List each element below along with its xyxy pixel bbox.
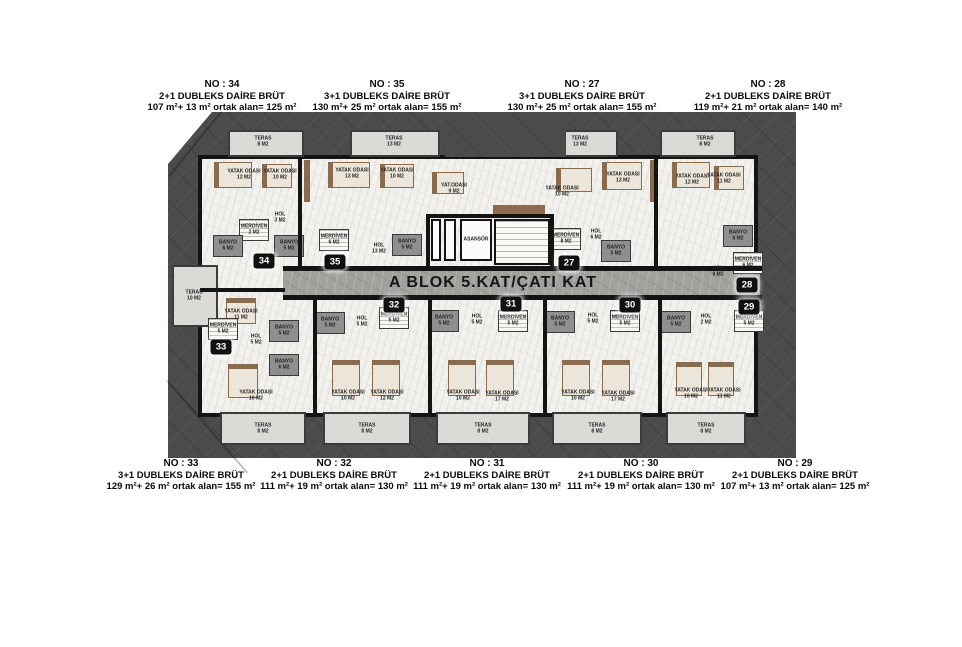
unit-badge-30: 30 — [620, 298, 641, 313]
room-label: TERAS10 M2 — [186, 291, 203, 302]
room-label: MERDİVEN5 M2 — [500, 316, 526, 327]
floorplan-sheet: NO : 342+1 DUBLEKS DAİRE BRÜT107 m²+ 13 … — [0, 0, 962, 647]
room-label: TERAS13 M2 — [386, 137, 403, 148]
unit-label-31: NO : 312+1 DUBLEKS DAİRE BRÜT111 m²+ 19 … — [399, 458, 575, 492]
unit-badge-28: 28 — [737, 278, 758, 293]
room-label: YATAK ODASI10 M2 — [545, 187, 578, 198]
unit-badge-34: 34 — [254, 254, 275, 269]
unit-type: 2+1 DUBLEKS DAİRE BRÜT — [553, 470, 729, 481]
room-label: MERDİVEN6 M2 — [321, 235, 347, 246]
room-label: YATAK ODASI17 M2 — [601, 392, 634, 403]
room-label: HOL2 M2 — [700, 315, 711, 326]
room-label: ASANSÖR — [463, 237, 488, 243]
room-label: BANYO6 M2 — [729, 231, 747, 242]
wall — [426, 214, 554, 218]
room-label: YATAK ODASI10 M2 — [331, 391, 364, 402]
room-label: MERDİVEN5 M2 — [612, 316, 638, 327]
room-label: TERAS8 M2 — [475, 424, 492, 435]
elevator-shaft — [444, 219, 456, 261]
room-label: YATAK ODASI11 M2 — [224, 310, 257, 321]
unit-type: 2+1 DUBLEKS DAİRE BRÜT — [134, 91, 310, 102]
unit-label-28: NO : 282+1 DUBLEKS DAİRE BRÜT119 m²+ 21 … — [680, 79, 856, 113]
room-label: YATAK ODASI10 M2 — [674, 389, 707, 400]
unit-number: NO : 28 — [680, 79, 856, 91]
unit-badge-31: 31 — [501, 297, 522, 312]
wall — [543, 300, 547, 414]
wall — [298, 157, 302, 266]
room-label: HOL13 M2 — [372, 244, 386, 255]
room-label: TERAS8 M2 — [697, 137, 714, 148]
room-label: BANYO6 M2 — [219, 241, 237, 252]
room-label: TERAS8 M2 — [255, 137, 272, 148]
room-label: YAT.ODASI9 M2 — [441, 184, 467, 195]
room-label: HOL6 M2 — [590, 230, 601, 241]
unit-area: 111 m²+ 19 m² ortak alan= 130 m² — [246, 481, 422, 492]
unit-area: 111 m²+ 19 m² ortak alan= 130 m² — [399, 481, 575, 492]
room-label: YATAK ODASI10 M2 — [380, 169, 413, 180]
wall — [426, 214, 430, 268]
room-label: TERAS8 M2 — [698, 424, 715, 435]
wall — [200, 288, 285, 292]
unit-type: 2+1 DUBLEKS DAİRE BRÜT — [246, 470, 422, 481]
unit-number: NO : 29 — [707, 458, 883, 470]
room-label: HOL8 M2 — [712, 267, 723, 278]
room-label: YATAK ODASI10 M2 — [239, 391, 272, 402]
wood-cabinet — [304, 160, 310, 202]
unit-label-30: NO : 302+1 DUBLEKS DAİRE BRÜT111 m²+ 19 … — [553, 458, 729, 492]
room-label: TERAS8 M2 — [589, 424, 606, 435]
room-label: YATAK ODASI17 M2 — [485, 392, 518, 403]
room-label: HOL5 M2 — [587, 314, 598, 325]
unit-badge-29: 29 — [739, 300, 760, 315]
floor-title: A BLOK 5.KAT/ÇATI KAT — [363, 269, 623, 296]
unit-type: 2+1 DUBLEKS DAİRE BRÜT — [399, 470, 575, 481]
room-label: YATAK ODASI12 M2 — [675, 175, 708, 186]
room-label: YATAK ODASI13 M2 — [335, 169, 368, 180]
room-label: HOL5 M2 — [250, 335, 261, 346]
room-label: BANYO5 M2 — [275, 326, 293, 337]
unit-badge-35: 35 — [325, 255, 346, 270]
unit-label-34: NO : 342+1 DUBLEKS DAİRE BRÜT107 m²+ 13 … — [134, 79, 310, 113]
room-label: YATAK ODASI10 M2 — [263, 170, 296, 181]
room-label: HOL5 M2 — [356, 317, 367, 328]
main-staircase — [494, 219, 550, 265]
unit-number: NO : 31 — [399, 458, 575, 470]
room-label: HOL5 M2 — [471, 315, 482, 326]
unit-type: 2+1 DUBLEKS DAİRE BRÜT — [680, 91, 856, 102]
wall — [313, 300, 317, 414]
unit-badge-33: 33 — [211, 340, 232, 355]
room-label: MERDİVEN6 M2 — [735, 258, 761, 269]
unit-type: 3+1 DUBLEKS DAİRE BRÜT — [494, 91, 670, 102]
unit-number: NO : 35 — [299, 79, 475, 91]
unit-area: 111 m²+ 19 m² ortak alan= 130 m² — [553, 481, 729, 492]
unit-label-29: NO : 292+1 DUBLEKS DAİRE BRÜT107 m²+ 13 … — [707, 458, 883, 492]
room-label: YATAK ODASI11 M2 — [707, 389, 740, 400]
unit-type: 3+1 DUBLEKS DAİRE BRÜT — [93, 470, 269, 481]
room-label: BANYO5 M2 — [551, 317, 569, 328]
room-label: BANYO5 M2 — [667, 317, 685, 328]
wall — [654, 157, 658, 266]
unit-label-27: NO : 273+1 DUBLEKS DAİRE BRÜT130 m²+ 25 … — [494, 79, 670, 113]
room-label: BANYO5 M2 — [321, 318, 339, 329]
unit-area: 129 m²+ 26 m² ortak alan= 155 m² — [93, 481, 269, 492]
room-label: TERAS13 M2 — [572, 137, 589, 148]
unit-badge-27: 27 — [559, 256, 580, 271]
unit-type: 3+1 DUBLEKS DAİRE BRÜT — [299, 91, 475, 102]
room-label: MERDİVEN5 M2 — [210, 324, 236, 335]
room-label: YATAK ODASI10 M2 — [446, 391, 479, 402]
room-label: YATAK ODASI13 M2 — [606, 173, 639, 184]
room-label: TERAS8 M2 — [359, 424, 376, 435]
room-label: MERDİVEN5 M2 — [381, 313, 407, 324]
room-label: BANYO5 M2 — [435, 316, 453, 327]
room-label: YATAK ODASI10 M2 — [561, 391, 594, 402]
room-label: YATAK ODASI12 M2 — [370, 391, 403, 402]
unit-label-35: NO : 353+1 DUBLEKS DAİRE BRÜT130 m²+ 25 … — [299, 79, 475, 113]
room-label: BANYO5 M2 — [280, 241, 298, 252]
room-label: YATAK ODASI11 M2 — [707, 174, 740, 185]
room-label: BANYO6 M2 — [275, 360, 293, 371]
roofpatch-area — [445, 112, 566, 157]
unit-label-32: NO : 322+1 DUBLEKS DAİRE BRÜT111 m²+ 19 … — [246, 458, 422, 492]
room-label: MERDİVEN5 M2 — [736, 316, 762, 327]
unit-label-33: NO : 333+1 DUBLEKS DAİRE BRÜT129 m²+ 26 … — [93, 458, 269, 492]
unit-number: NO : 34 — [134, 79, 310, 91]
unit-type: 2+1 DUBLEKS DAİRE BRÜT — [707, 470, 883, 481]
elevator-shaft — [431, 219, 441, 261]
unit-number: NO : 30 — [553, 458, 729, 470]
unit-number: NO : 32 — [246, 458, 422, 470]
wall — [658, 300, 662, 414]
wall — [428, 300, 432, 414]
unit-area: 107 m²+ 13 m² ortak alan= 125 m² — [707, 481, 883, 492]
room-label: HOL3 M2 — [274, 213, 285, 224]
unit-badge-32: 32 — [384, 298, 405, 313]
room-label: TERAS8 M2 — [255, 424, 272, 435]
room-label: YATAK ODASI12 M2 — [227, 170, 260, 181]
unit-number: NO : 27 — [494, 79, 670, 91]
room-label: BANYO5 M2 — [607, 246, 625, 257]
floor-plan: A BLOK 5.KAT/ÇATI KAT TERAS8 M2YATAK ODA… — [168, 112, 796, 458]
room-label: MERDİVEN2 M2 — [241, 225, 267, 236]
room-label: BANYO5 M2 — [398, 240, 416, 251]
room-label: MERDİVEN8 M2 — [553, 234, 579, 245]
